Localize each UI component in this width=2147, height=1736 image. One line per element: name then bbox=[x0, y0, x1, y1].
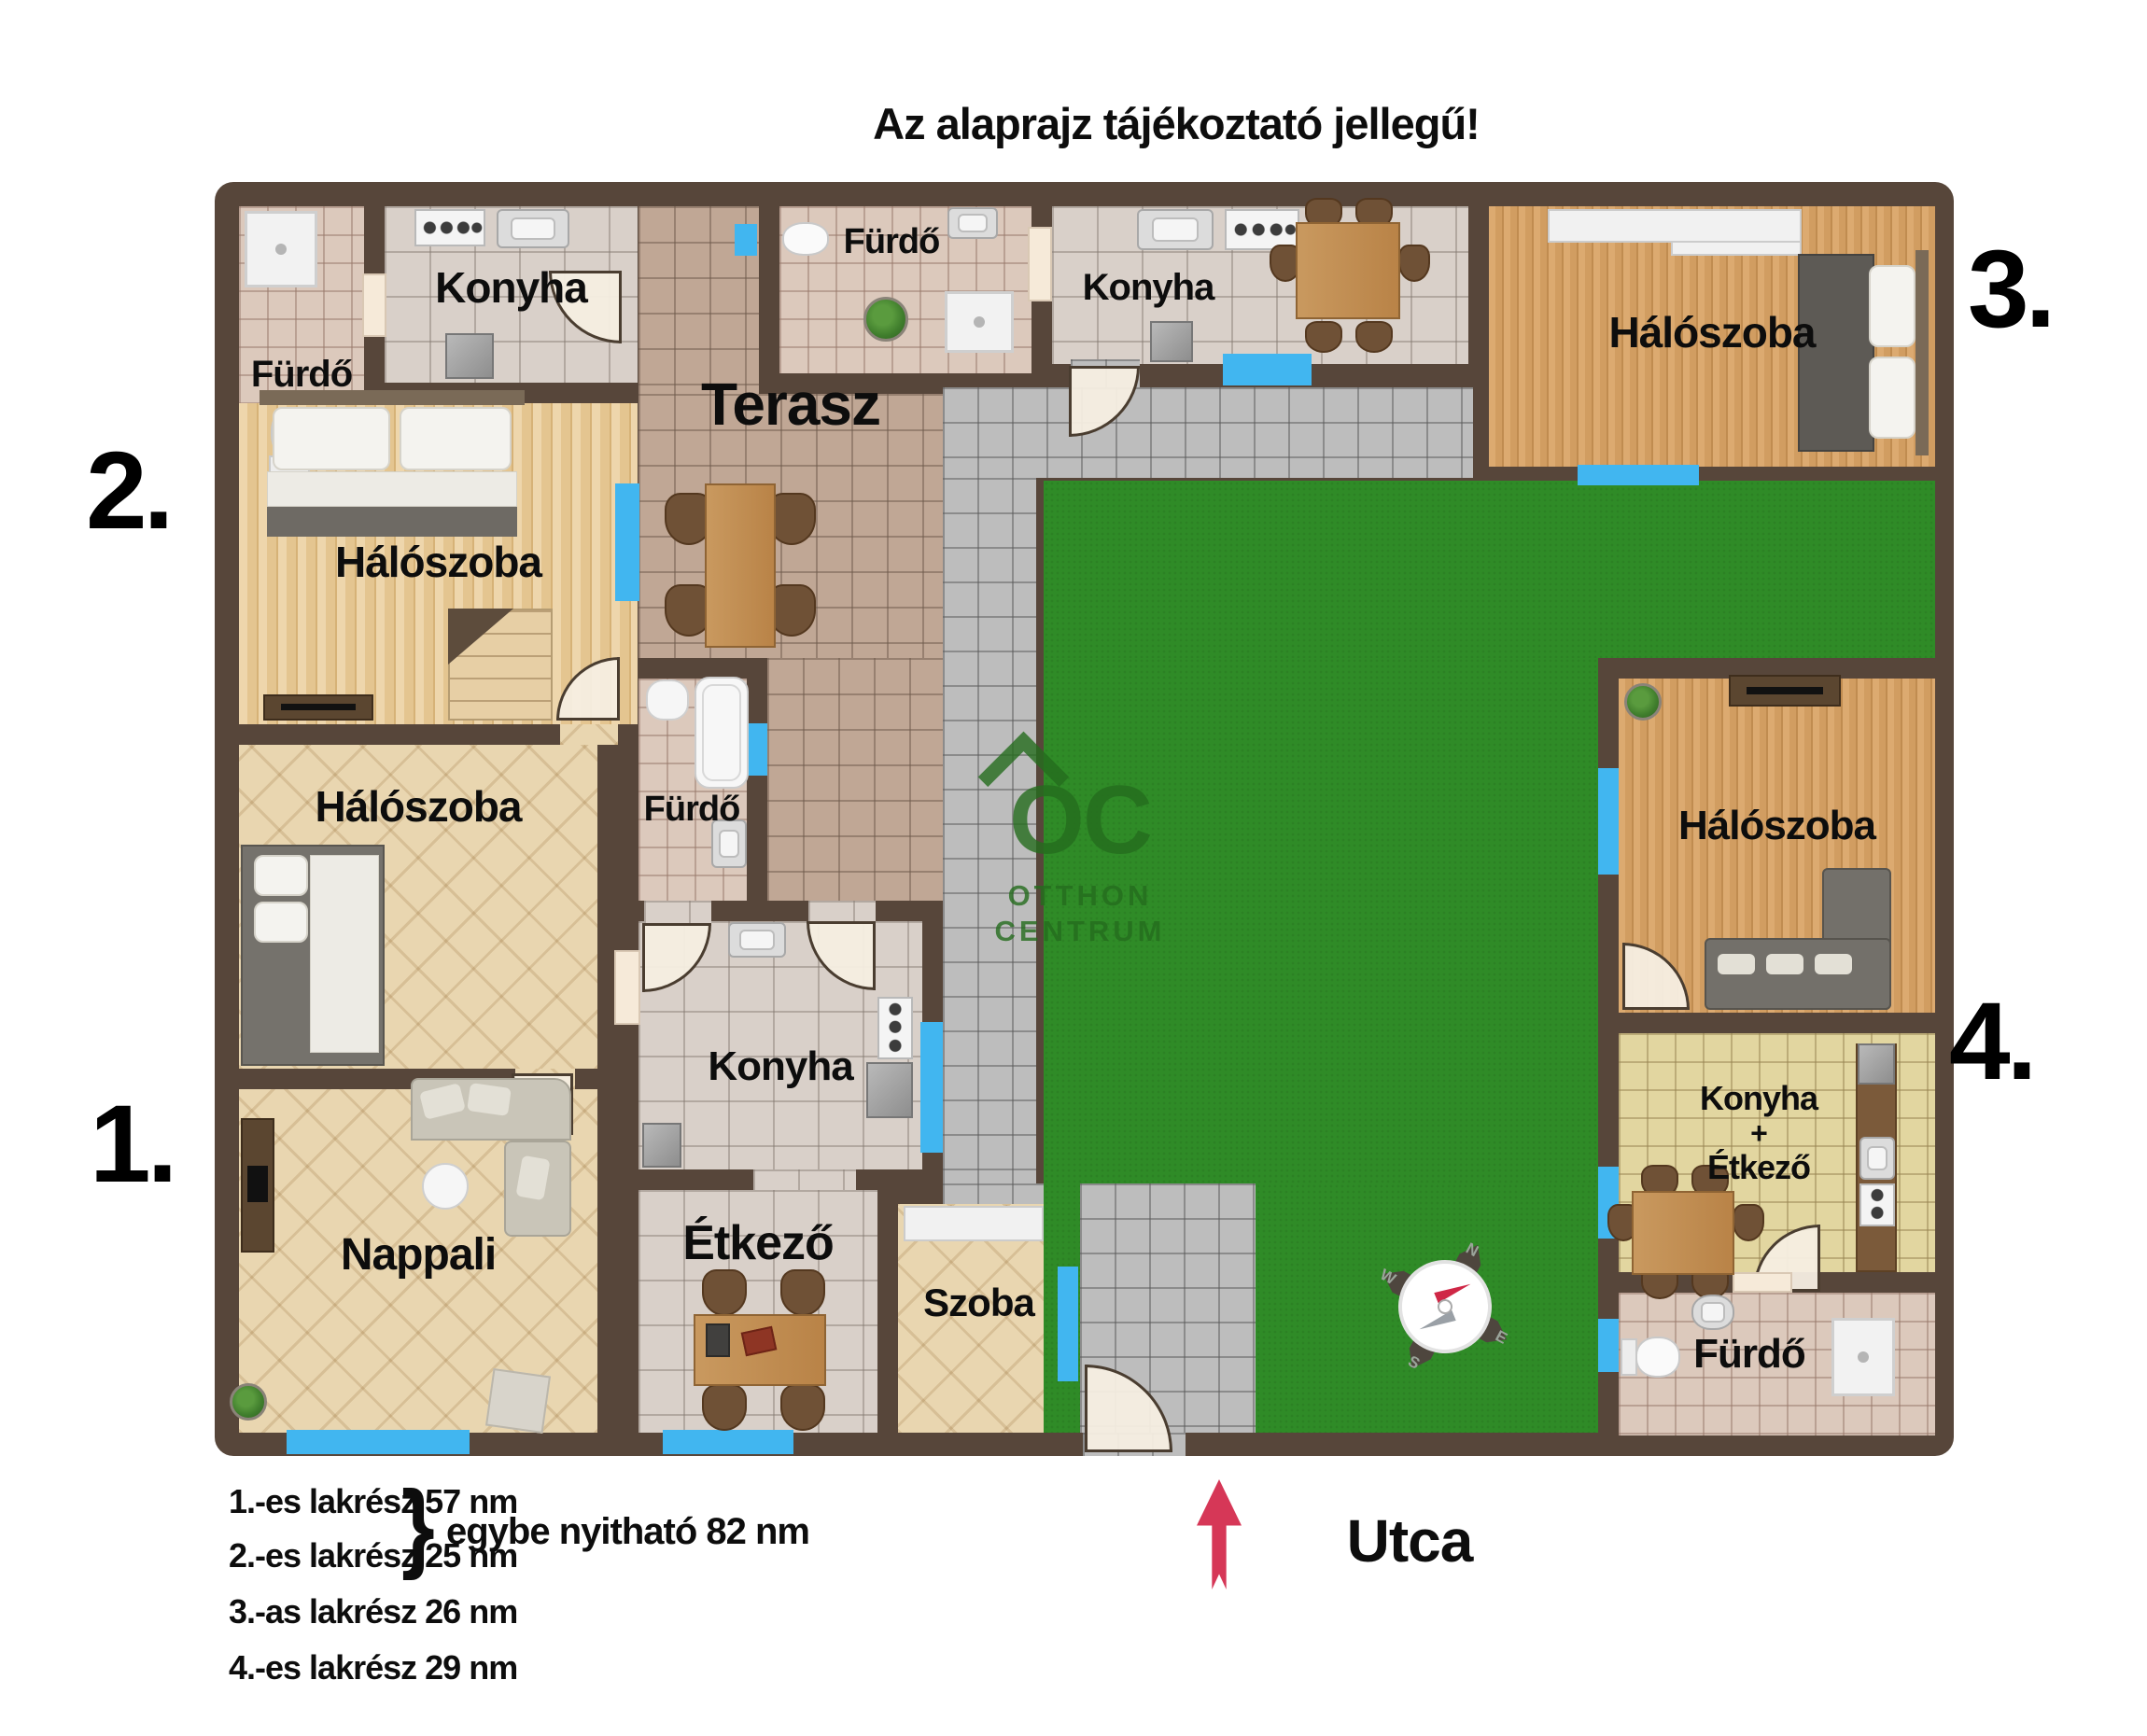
opening-bedroom2-bedroom1 bbox=[560, 724, 618, 745]
otthon-centrum-watermark: OC OTTHON CENTRUM bbox=[991, 745, 1169, 950]
bed-pillow-bedroom-2-left bbox=[273, 407, 390, 470]
opening-kitchen1-door-left bbox=[644, 901, 711, 923]
window-bathroom-4 bbox=[1598, 1319, 1619, 1372]
window-terrace-top bbox=[735, 224, 757, 256]
label-bathroom-mid: Fürdő bbox=[631, 791, 752, 829]
fridge-kitchen-3 bbox=[1150, 321, 1193, 362]
courtyard-grass-top bbox=[1044, 481, 1935, 658]
north-entrance-arrow bbox=[1197, 1479, 1242, 1589]
sofa-bedroom-4-cushion-1 bbox=[1718, 954, 1755, 974]
dining-chair-4 bbox=[780, 1384, 825, 1431]
unit-number-4: 4. bbox=[1949, 978, 2033, 1105]
door-bathroom-4 bbox=[1733, 1272, 1792, 1293]
window-diningroom bbox=[663, 1430, 793, 1454]
kitchen3-chair-6 bbox=[1398, 245, 1430, 282]
bathtub-bathroom-mid bbox=[695, 677, 749, 789]
label-bedroom-2: Hálószoba bbox=[239, 539, 638, 584]
dining-chair-3 bbox=[702, 1384, 747, 1431]
bed-sheet-bedroom-2 bbox=[267, 471, 517, 507]
dining-chair-1 bbox=[702, 1269, 747, 1316]
label-bathroom-2: Fürdő bbox=[239, 355, 364, 394]
shower-bathroom-top bbox=[945, 291, 1014, 353]
label-bathroom-4: Fürdő bbox=[1619, 1333, 1880, 1376]
wardrobe-szoba bbox=[904, 1206, 1044, 1241]
unit-number-3: 3. bbox=[1968, 226, 2052, 353]
shower-bathroom-2 bbox=[245, 211, 317, 287]
window-livingroom bbox=[287, 1430, 470, 1454]
window-kitchen-1 bbox=[920, 1022, 943, 1153]
terrace-table bbox=[705, 483, 776, 648]
watermark-line2: CENTRUM bbox=[991, 914, 1169, 950]
room-floor-terrace-lower bbox=[767, 658, 943, 901]
legend-combined: egybe nyitható 82 nm bbox=[446, 1512, 809, 1551]
sink-bathroom-4 bbox=[1691, 1295, 1734, 1330]
fridge-kitchen-2 bbox=[445, 333, 494, 379]
legend-item-4: 4.-es lakrész 29 nm bbox=[229, 1650, 517, 1686]
bed-pillow-bedroom-2-right bbox=[400, 407, 512, 470]
label-bathroom-top: Fürdő bbox=[779, 224, 1003, 261]
unit-number-2: 2. bbox=[86, 427, 170, 554]
bed-pillow-bedroom-1-top bbox=[254, 855, 308, 896]
tv-stand-bedroom-2 bbox=[263, 694, 373, 721]
sofa-cushion-2 bbox=[467, 1083, 512, 1116]
window-szoba bbox=[1058, 1267, 1078, 1381]
label-kitchen-3: Konyha bbox=[1036, 268, 1260, 307]
window-bedroom-4 bbox=[1598, 768, 1619, 875]
coffee-table-living bbox=[422, 1163, 469, 1210]
rug-living bbox=[485, 1368, 551, 1434]
stove-kitchen-2 bbox=[414, 209, 485, 246]
opening-kitchen1-dining bbox=[753, 1169, 856, 1190]
watermark-line1: OTTHON bbox=[991, 878, 1169, 915]
kitchen3-table bbox=[1296, 222, 1400, 319]
plant-living bbox=[230, 1383, 267, 1421]
label-bedroom-4: Hálószoba bbox=[1619, 805, 1935, 847]
fridge-dining bbox=[642, 1123, 681, 1168]
floorplan-canvas: Az alaprajz tájékoztató jellegű! bbox=[0, 0, 2147, 1736]
plant-bedroom-4 bbox=[1624, 683, 1662, 721]
window-bedroom-3 bbox=[1578, 465, 1699, 485]
page-title: Az alaprajz tájékoztató jellegű! bbox=[616, 101, 1736, 147]
label-kitchen-2: Konyha bbox=[385, 265, 638, 310]
bed-pillow-bedroom-1-bottom bbox=[254, 902, 308, 943]
kitchen4-chair-6 bbox=[1733, 1204, 1764, 1241]
label-kitchen-4-line3: Étkező bbox=[1619, 1150, 1899, 1185]
label-kitchen-4-line2: + bbox=[1619, 1118, 1899, 1150]
label-diningroom: Étkező bbox=[638, 1218, 877, 1269]
label-terrace: Terasz bbox=[638, 373, 943, 436]
door-bathroom-2 bbox=[362, 273, 386, 337]
window-kitchen-3 bbox=[1223, 354, 1312, 385]
label-szoba: Szoba bbox=[898, 1282, 1059, 1323]
legend-brace: } bbox=[401, 1475, 434, 1578]
label-bedroom-3: Hálószoba bbox=[1489, 310, 1935, 355]
sink-kitchen-1 bbox=[728, 922, 786, 958]
window-bathroom-mid bbox=[747, 723, 767, 776]
opening-kitchen1-door-right bbox=[808, 901, 876, 923]
label-bedroom-1: Hálószoba bbox=[239, 784, 597, 829]
kitchen3-chair-4 bbox=[1355, 321, 1393, 353]
door-bedroom1-kitchen bbox=[614, 950, 640, 1025]
fridge-kitchen-4 bbox=[1858, 1043, 1895, 1085]
sink-kitchen-2 bbox=[497, 209, 569, 248]
kitchen3-chair-3 bbox=[1305, 321, 1342, 353]
kitchen4-table bbox=[1632, 1191, 1734, 1275]
bed-sheet-bedroom-1 bbox=[310, 855, 379, 1053]
tv-stand-bedroom-4 bbox=[1729, 675, 1841, 707]
label-livingroom: Nappali bbox=[239, 1232, 597, 1279]
label-kitchen-4-line1: Konyha bbox=[1619, 1081, 1899, 1116]
sofa-bedroom-4-cushion-2 bbox=[1766, 954, 1803, 974]
sofa-bedroom-4-cushion-3 bbox=[1815, 954, 1852, 974]
water-heater-bathroom-mid bbox=[646, 679, 689, 721]
sink-kitchen-3 bbox=[1137, 209, 1214, 250]
dining-book-dark bbox=[706, 1323, 730, 1357]
street-label: Utca bbox=[1288, 1510, 1531, 1573]
walkway-top bbox=[943, 387, 1473, 478]
bed-pillow-bedroom-3-bottom bbox=[1869, 357, 1915, 439]
unit-number-1: 1. bbox=[90, 1081, 174, 1208]
wardrobe-bedroom-3b bbox=[1671, 241, 1802, 256]
legend-item-3: 3.-as lakrész 26 nm bbox=[229, 1594, 517, 1630]
label-kitchen-1: Konyha bbox=[638, 1045, 922, 1088]
dining-chair-2 bbox=[780, 1269, 825, 1316]
wardrobe-bedroom-3 bbox=[1548, 209, 1802, 243]
plant-terrace bbox=[863, 297, 908, 342]
bed-blanket-bedroom-2 bbox=[267, 507, 517, 537]
stove-kitchen-4 bbox=[1859, 1183, 1895, 1226]
